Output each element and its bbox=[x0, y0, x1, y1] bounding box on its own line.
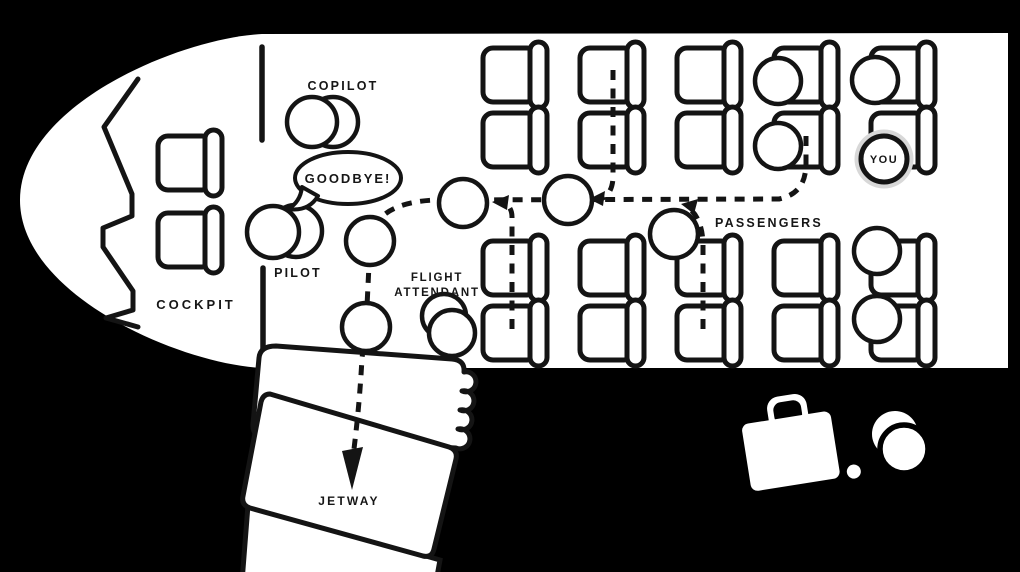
passenger-seat bbox=[483, 235, 547, 301]
seated-passenger bbox=[755, 58, 801, 104]
copilot-label: COPILOT bbox=[308, 79, 379, 93]
passenger-seat bbox=[483, 107, 547, 173]
pilot-figure bbox=[247, 205, 322, 258]
passenger-seat bbox=[677, 107, 741, 173]
seated-passenger bbox=[854, 296, 900, 342]
passenger-seat bbox=[677, 300, 741, 366]
passenger-seat bbox=[774, 235, 838, 301]
copilot-figure bbox=[287, 97, 358, 147]
passenger-seat bbox=[774, 300, 838, 366]
flight-attendant-label-line1: FLIGHT bbox=[411, 272, 463, 284]
passenger-seat bbox=[677, 42, 741, 108]
passenger-seat bbox=[483, 300, 547, 366]
queue-passenger bbox=[439, 179, 487, 227]
passenger-seat bbox=[580, 235, 644, 301]
suitcase-body bbox=[741, 411, 841, 492]
seated-passenger bbox=[852, 57, 898, 103]
cockpit-seat bbox=[158, 130, 222, 196]
queue-passenger bbox=[650, 210, 698, 258]
you-label: YOU bbox=[870, 154, 898, 166]
seated-passenger bbox=[755, 123, 801, 169]
cockpit-seat bbox=[158, 207, 222, 273]
cockpit-label: COCKPIT bbox=[156, 297, 236, 312]
deplaning-diagram: YOU GOODBYE! COCKPIT PILOT COPILOT FLIGH… bbox=[0, 0, 1020, 572]
seated-passenger bbox=[854, 228, 900, 274]
queue-passenger-at-door bbox=[342, 303, 390, 351]
queue-passenger bbox=[346, 217, 394, 265]
pilot-label: PILOT bbox=[274, 266, 322, 280]
speech-bubble-text: GOODBYE! bbox=[305, 171, 392, 186]
jetway-label: JETWAY bbox=[318, 494, 379, 508]
flight-attendant-label-line2: ATTENDANT bbox=[394, 287, 480, 299]
passenger-seat bbox=[483, 42, 547, 108]
passengers-label: PASSENGERS bbox=[715, 216, 823, 230]
queue-passenger bbox=[544, 176, 592, 224]
passenger-seat bbox=[580, 300, 644, 366]
you-passenger: YOU bbox=[855, 130, 914, 189]
